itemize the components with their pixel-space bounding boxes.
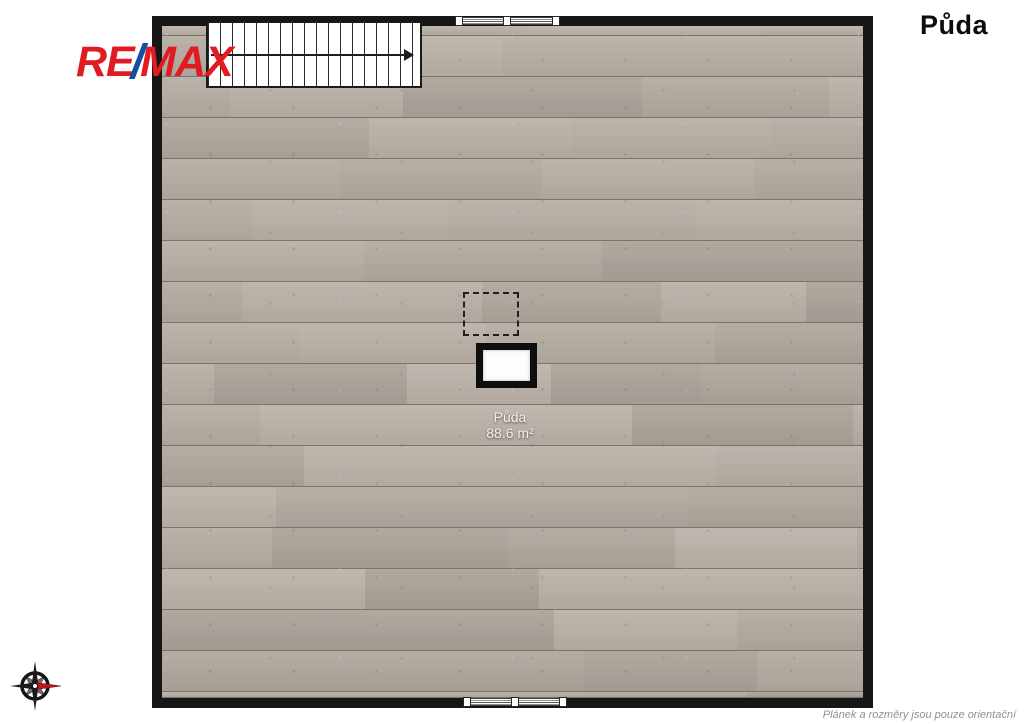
plank: [642, 77, 829, 117]
plank: [260, 405, 431, 445]
plank-row: [162, 569, 863, 610]
plank: [857, 528, 863, 568]
plank: [449, 200, 697, 240]
plank-row: [162, 241, 863, 282]
plank: [845, 241, 863, 281]
plank: [214, 364, 408, 404]
plank: [586, 692, 748, 697]
window-cap: [503, 16, 511, 26]
plank: [162, 528, 273, 568]
plank: [675, 528, 858, 568]
plank: [661, 282, 807, 322]
plank: [162, 323, 301, 363]
plank: [364, 241, 602, 281]
plank: [304, 446, 483, 486]
plank: [507, 528, 676, 568]
plank: [162, 159, 340, 199]
plank: [162, 118, 370, 158]
plank: [737, 610, 863, 650]
plank-row: [162, 528, 863, 569]
plank: [339, 159, 541, 199]
plank: [162, 200, 253, 240]
plank: [573, 118, 771, 158]
plank: [219, 692, 372, 697]
remax-logo: RE/MAX: [76, 38, 233, 86]
plank: [162, 610, 324, 650]
plank: [688, 487, 863, 527]
window-cap: [511, 697, 519, 707]
plank: [276, 487, 525, 527]
plank: [632, 405, 854, 445]
plank: [806, 282, 863, 322]
roof-window-dashed-outline: [463, 292, 519, 336]
plank: [439, 651, 584, 691]
plank: [217, 569, 366, 609]
plank-row: [162, 651, 863, 692]
plank-row: [162, 118, 863, 159]
plank: [162, 282, 243, 322]
room-area: 88.6 m²: [430, 425, 590, 441]
plank: [162, 487, 277, 527]
plank: [701, 364, 863, 404]
window-cap: [559, 697, 567, 707]
room-name: Půda: [430, 409, 590, 425]
plank: [162, 569, 218, 609]
plank: [747, 692, 863, 697]
plank: [502, 36, 706, 76]
plank: [300, 323, 487, 363]
plank-row: [162, 446, 863, 487]
plank: [541, 159, 757, 199]
plank: [705, 36, 863, 76]
logo-max: MAX: [140, 38, 233, 86]
plank: [272, 528, 508, 568]
plank: [524, 487, 690, 527]
plank: [757, 651, 863, 691]
window-cap: [455, 16, 463, 26]
plank: [162, 241, 365, 281]
plank: [716, 446, 863, 486]
plank: [539, 569, 789, 609]
plank: [755, 159, 863, 199]
compass-rose-icon: [8, 659, 62, 713]
plank: [696, 200, 863, 240]
chimney-opening: [476, 343, 537, 388]
plank: [853, 405, 863, 445]
plank: [369, 118, 575, 158]
plank: [162, 446, 305, 486]
plank-row: [162, 200, 863, 241]
plank: [252, 651, 440, 691]
plank: [242, 282, 483, 322]
attic-floorplan: Půda 88.6 m²: [152, 16, 873, 708]
plank: [715, 323, 863, 363]
staircase: [206, 21, 422, 88]
plank: [162, 364, 215, 404]
stairs-direction-arrow-icon: [211, 54, 404, 56]
window-cap: [552, 16, 560, 26]
logo-re: RE: [76, 38, 134, 86]
disclaimer-text: Plánek a rozměry jsou pouze orientační: [823, 709, 1016, 721]
plank: [788, 569, 863, 609]
plank-row: [162, 487, 863, 528]
plank: [551, 364, 702, 404]
plank: [252, 200, 450, 240]
room-label: Půda 88.6 m²: [430, 409, 590, 441]
plank: [523, 26, 762, 35]
plank-row: [162, 610, 863, 651]
page-title: Půda: [920, 10, 988, 41]
plank: [761, 26, 863, 35]
plank: [365, 569, 540, 609]
plank: [482, 446, 717, 486]
plank: [403, 77, 644, 117]
window-cap: [463, 697, 471, 707]
window-bottom: [463, 697, 567, 707]
plank: [162, 405, 261, 445]
plank: [829, 77, 863, 117]
window-top: [455, 16, 560, 26]
plank: [602, 241, 847, 281]
plank: [771, 118, 863, 158]
plank: [162, 692, 220, 697]
floorplan-page: Půda 88.6 m² RE/MAX Půda Plánek a rozměr…: [0, 0, 1024, 724]
plank: [162, 651, 253, 691]
plank: [323, 610, 556, 650]
plank: [583, 651, 758, 691]
plank: [554, 610, 738, 650]
plank-row: [162, 159, 863, 200]
